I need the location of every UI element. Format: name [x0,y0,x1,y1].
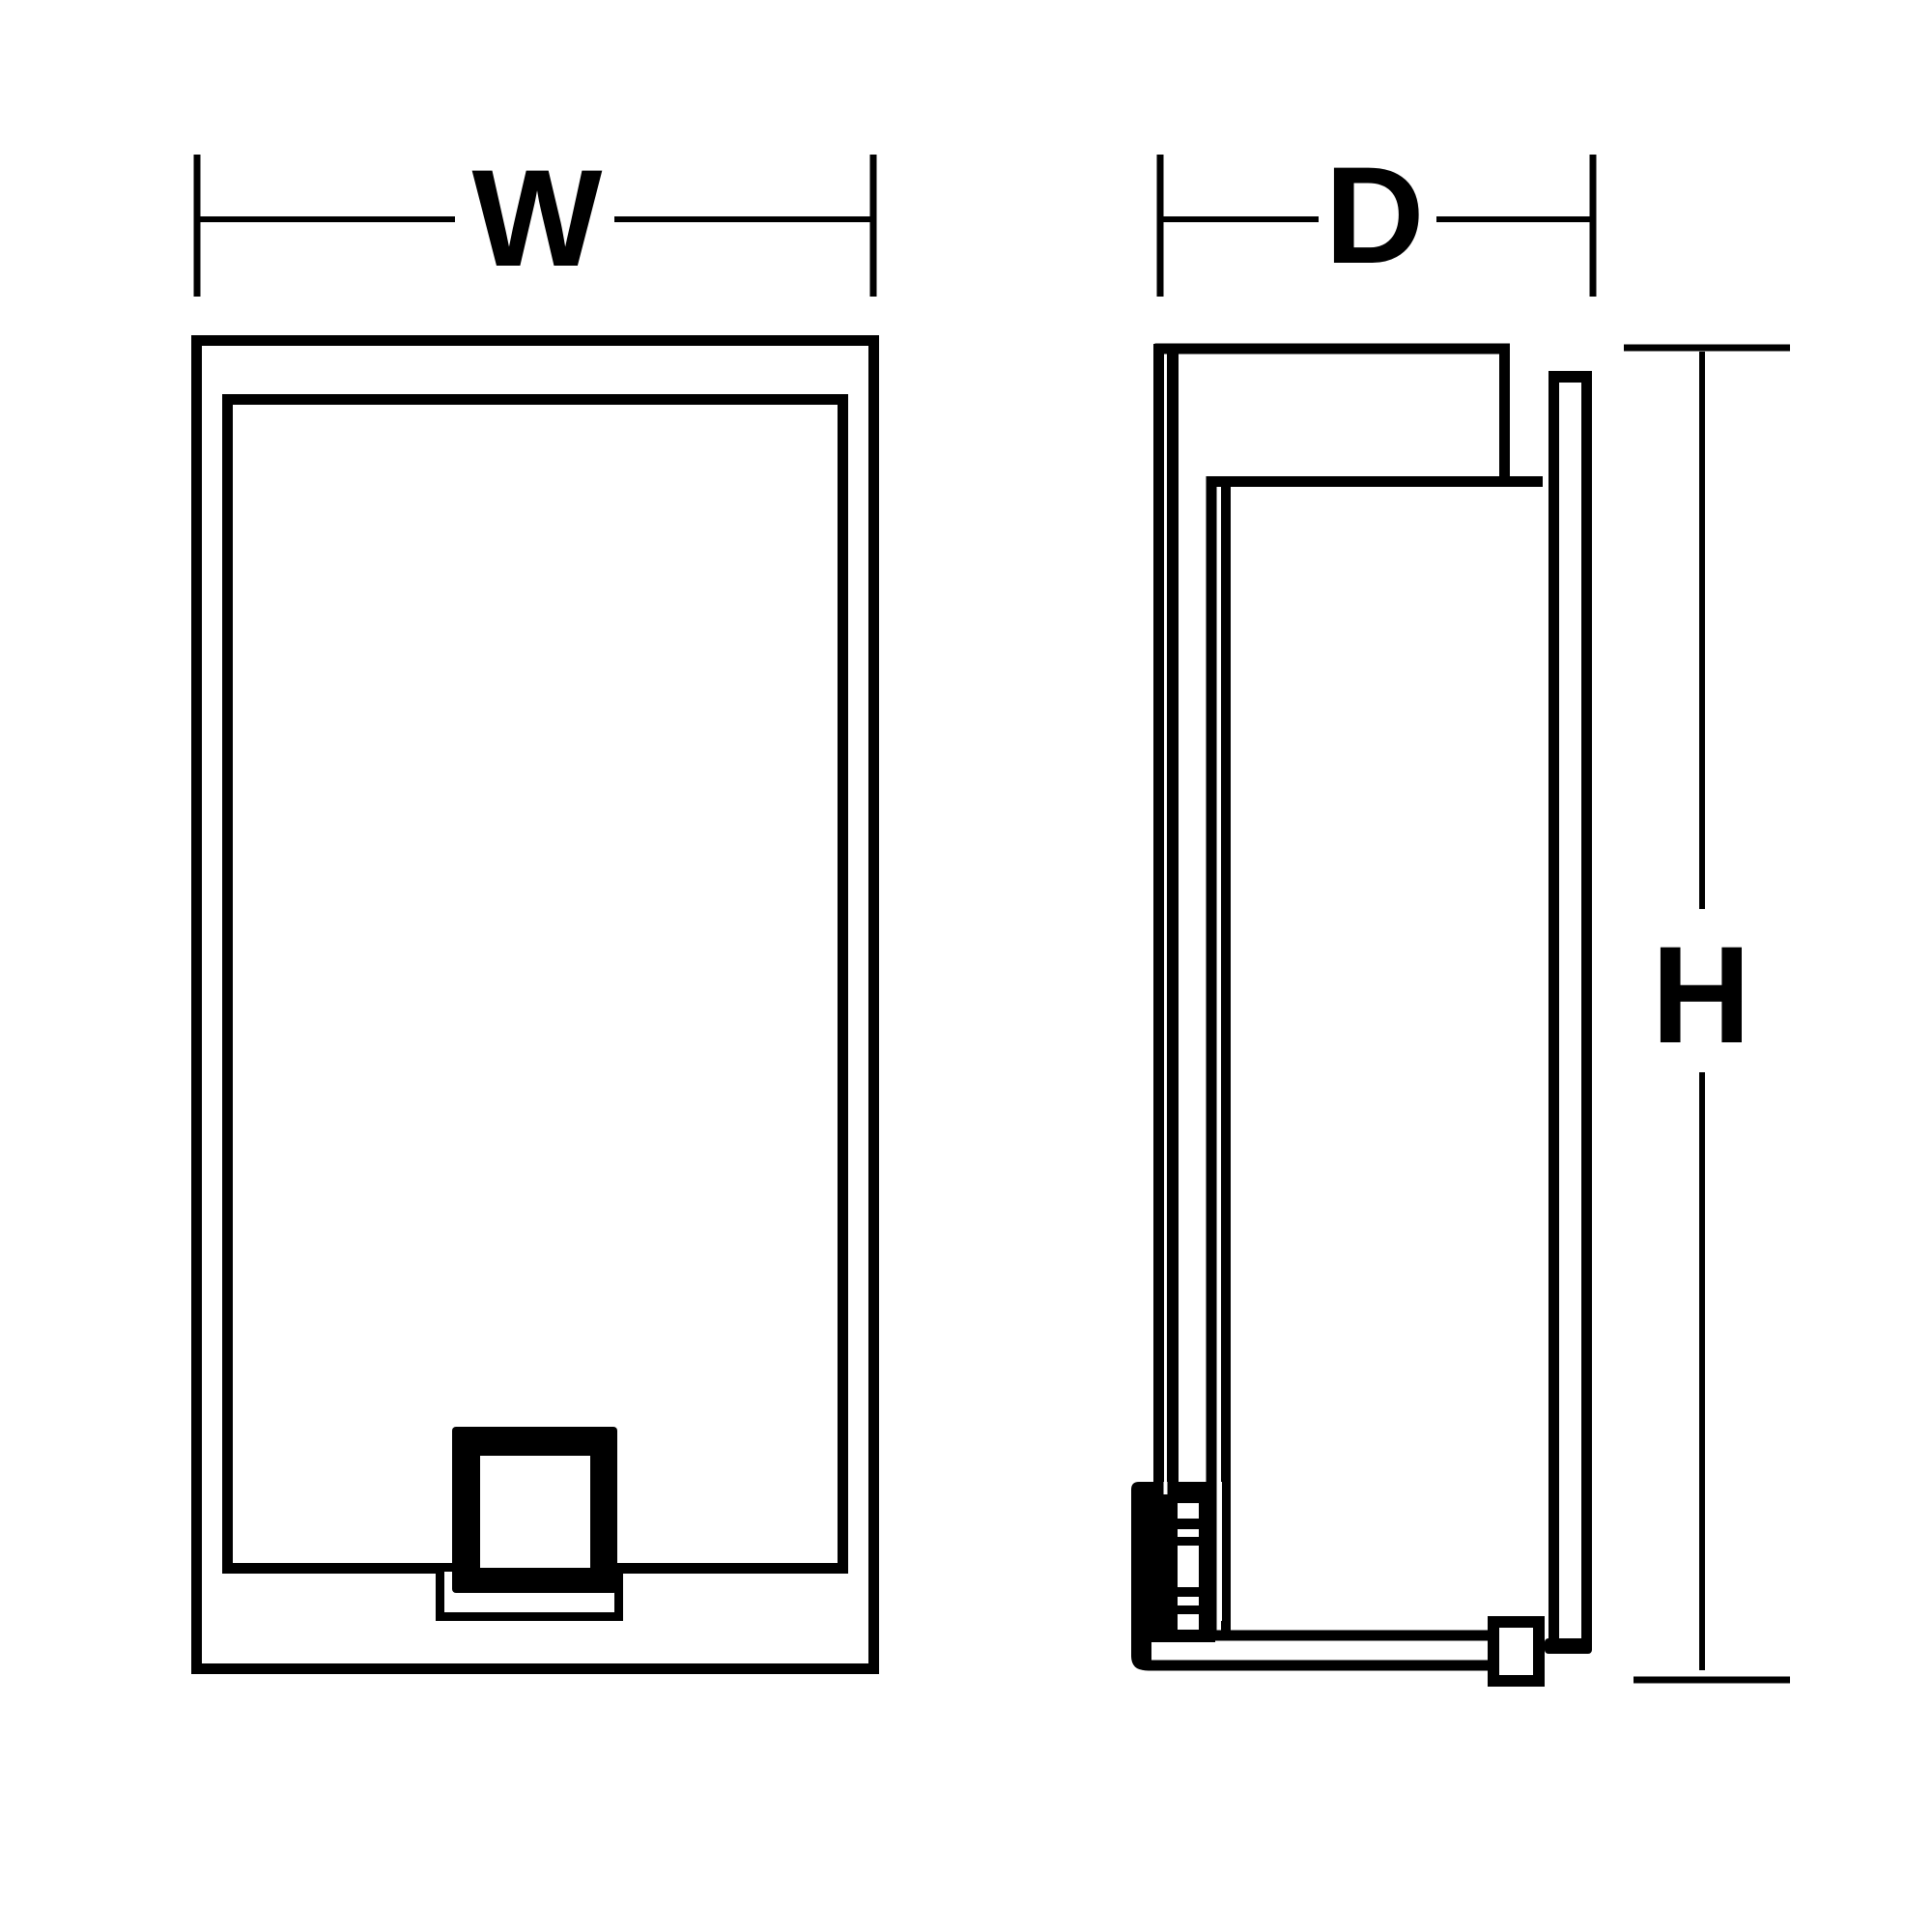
svg-text:W: W [472,142,603,296]
svg-text:H: H [1651,919,1750,1072]
svg-text:D: D [1324,139,1424,293]
